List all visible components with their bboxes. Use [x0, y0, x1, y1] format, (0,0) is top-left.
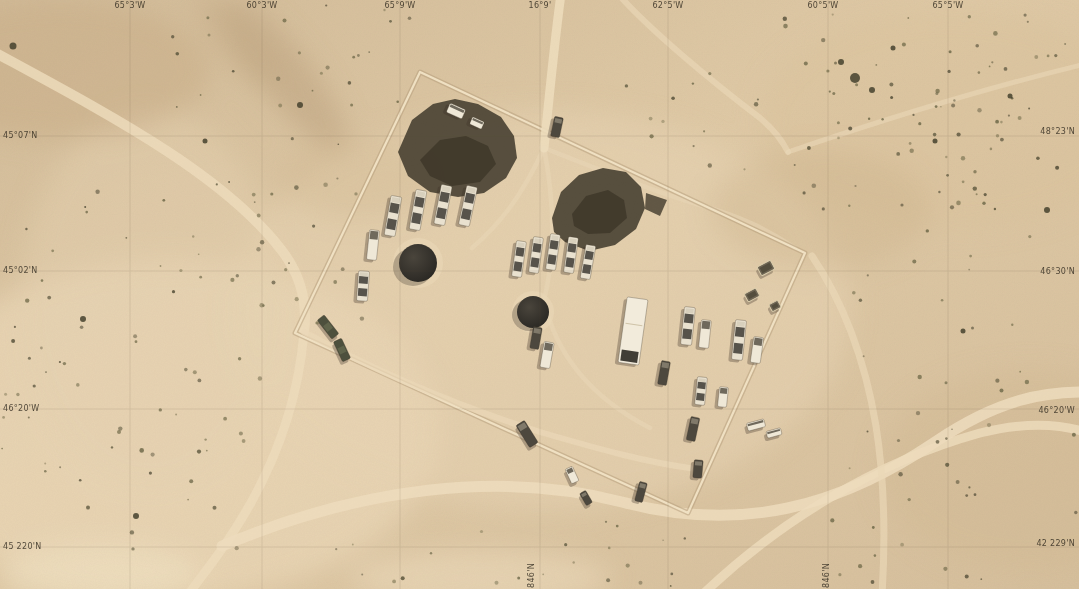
shrub — [95, 190, 99, 194]
shrub — [987, 423, 991, 427]
shrub — [975, 44, 979, 48]
shrub — [63, 362, 66, 365]
shrub — [1004, 67, 1008, 71]
shrub — [990, 148, 993, 151]
shrub — [325, 4, 327, 6]
shrub — [822, 207, 825, 210]
shrub — [270, 192, 273, 195]
shrub — [1027, 21, 1029, 23]
shrub — [950, 205, 954, 209]
shrub — [855, 83, 858, 86]
shrub — [352, 56, 355, 59]
shrub — [935, 89, 939, 93]
shrub — [872, 526, 875, 529]
shrub — [783, 24, 788, 29]
shrub — [962, 180, 965, 183]
bush — [850, 73, 860, 83]
shrub — [807, 146, 811, 150]
shrub — [213, 506, 217, 510]
shrub — [900, 543, 904, 547]
shrub — [139, 448, 144, 453]
shrub — [257, 214, 261, 218]
shrub — [898, 472, 902, 476]
shrub — [206, 450, 208, 452]
shrub — [193, 370, 197, 374]
radar-dome — [399, 244, 437, 282]
shrub — [86, 506, 90, 510]
shrub — [1047, 55, 1050, 58]
shrub — [918, 375, 922, 379]
shrub — [176, 106, 178, 108]
shrub — [28, 357, 31, 360]
shrub — [909, 142, 912, 145]
shrub — [171, 35, 174, 38]
shrub — [969, 255, 972, 258]
shrub — [662, 539, 664, 541]
shrub — [361, 573, 363, 575]
shrub — [875, 64, 877, 66]
shrub — [389, 20, 392, 23]
shrub — [1034, 55, 1038, 59]
shrub — [910, 149, 914, 153]
shrub — [44, 470, 47, 473]
shrub — [1072, 433, 1076, 437]
shrub — [1000, 389, 1004, 393]
shrub — [430, 552, 432, 554]
shrub — [916, 411, 920, 415]
satellite-scene — [0, 0, 1079, 589]
shrub — [849, 467, 851, 469]
shrub — [941, 299, 944, 302]
shrub — [626, 564, 630, 568]
shrub — [926, 229, 929, 232]
shrub — [953, 99, 955, 101]
shrub — [320, 72, 323, 75]
shrub — [288, 262, 290, 264]
shrub — [236, 274, 239, 277]
shrub — [28, 417, 30, 419]
shrub — [1019, 371, 1021, 373]
missile-launcher-truck — [353, 270, 369, 303]
shrub — [4, 393, 7, 396]
shrub — [956, 480, 960, 484]
shrub — [256, 247, 260, 251]
shrub — [1054, 54, 1057, 57]
shrub — [573, 561, 575, 563]
shrub — [982, 202, 985, 205]
shrub — [254, 201, 256, 203]
shrub — [79, 479, 82, 482]
shrub — [945, 156, 947, 158]
shrub — [965, 575, 969, 579]
shrub — [401, 576, 405, 580]
shrub — [936, 440, 940, 444]
shrub — [338, 144, 340, 146]
shrub — [278, 104, 282, 108]
shrub — [804, 61, 808, 65]
shrub — [984, 193, 987, 196]
shrub — [671, 97, 675, 101]
shrub — [206, 16, 209, 19]
shrub — [852, 291, 856, 295]
shrub — [977, 108, 981, 112]
shrub — [85, 211, 88, 214]
shrub — [968, 486, 970, 488]
shrub — [312, 90, 314, 92]
shrub — [179, 269, 182, 272]
shrub — [837, 121, 840, 124]
shrub — [1011, 324, 1013, 326]
shrub — [25, 298, 29, 302]
shrub — [830, 518, 834, 522]
bush — [961, 329, 966, 334]
shrub — [59, 466, 61, 468]
shrub — [480, 530, 483, 533]
shrub — [971, 327, 974, 330]
shrub — [949, 50, 952, 53]
shrub — [197, 450, 201, 454]
shrub — [965, 494, 968, 497]
shrub — [1, 448, 3, 450]
bush — [891, 46, 896, 51]
shrub — [354, 192, 357, 195]
shrub — [1074, 511, 1077, 514]
bush — [297, 102, 303, 108]
shrub — [133, 334, 137, 338]
shrub — [661, 120, 664, 123]
shrub — [11, 339, 15, 343]
shrub — [199, 276, 202, 279]
shrub — [743, 168, 745, 170]
shrub — [383, 9, 385, 11]
shrub — [495, 581, 499, 585]
shrub — [232, 70, 235, 73]
shrub — [294, 185, 299, 190]
shrub — [838, 573, 841, 576]
shrub — [1028, 108, 1030, 110]
shrub — [184, 368, 188, 372]
shrub — [44, 463, 46, 465]
shrub — [1008, 115, 1010, 117]
shrub — [989, 66, 991, 68]
shrub — [881, 118, 883, 120]
shrub — [980, 578, 982, 580]
shrub — [59, 361, 61, 363]
shrub — [564, 543, 567, 546]
shrub — [991, 61, 993, 63]
shrub — [907, 17, 909, 19]
shrub — [649, 117, 653, 121]
shrub — [693, 145, 695, 147]
shrub — [692, 82, 694, 84]
shrub — [935, 105, 938, 108]
shrub — [900, 203, 903, 206]
shrub — [189, 479, 193, 483]
shrub — [242, 439, 246, 443]
shrub — [889, 83, 893, 87]
shrub — [938, 191, 940, 193]
shrub — [854, 185, 856, 187]
shrub — [978, 71, 981, 74]
shrub — [408, 17, 412, 21]
shrub — [794, 164, 796, 166]
bush — [838, 59, 844, 65]
dark-truck — [690, 459, 704, 480]
shrub — [837, 137, 840, 140]
shrub — [258, 376, 262, 380]
shrub — [230, 278, 234, 282]
shrub — [995, 379, 999, 383]
shrub — [125, 237, 127, 239]
shrub — [708, 72, 711, 75]
shrub — [757, 98, 759, 100]
shrub — [803, 191, 806, 194]
shrub — [47, 296, 51, 300]
shrub — [298, 51, 301, 54]
shrub — [896, 152, 900, 156]
shrub — [172, 290, 175, 293]
shrub — [858, 564, 862, 568]
shrub — [25, 228, 27, 230]
shrub — [918, 122, 921, 125]
shrub — [135, 340, 138, 343]
shrub — [360, 316, 364, 320]
shrub — [912, 260, 916, 264]
shrub — [341, 267, 345, 271]
shrub — [945, 437, 948, 440]
shrub — [276, 77, 280, 81]
shrub — [859, 299, 862, 302]
shrub — [1000, 121, 1003, 124]
shrub — [51, 249, 54, 252]
shrub — [41, 279, 44, 282]
shrub — [670, 585, 672, 587]
shrub — [868, 118, 870, 120]
shrub — [834, 62, 837, 65]
shrub — [45, 371, 47, 373]
shrub — [80, 326, 84, 330]
shrub — [223, 417, 227, 421]
shrub — [84, 206, 86, 208]
shrub — [216, 183, 218, 185]
shrub — [625, 84, 628, 87]
shrub — [160, 265, 162, 267]
bush — [10, 43, 17, 50]
shrub — [867, 431, 869, 433]
shrub — [974, 493, 977, 496]
shrub — [1000, 138, 1004, 142]
shrub — [1028, 235, 1031, 238]
bush — [80, 316, 86, 322]
shrub — [821, 38, 825, 42]
shrub — [867, 274, 869, 276]
shrub — [951, 103, 955, 107]
shrub — [16, 393, 19, 396]
bush — [203, 139, 208, 144]
shrub — [295, 297, 299, 301]
shrub — [151, 453, 155, 457]
bush — [869, 87, 875, 93]
shrub — [754, 102, 758, 106]
shrub — [670, 573, 673, 576]
shrub — [352, 544, 354, 546]
shrub — [994, 208, 996, 210]
shrub — [326, 66, 330, 70]
shrub — [1024, 14, 1027, 17]
shrub — [2, 416, 5, 419]
shrub — [812, 184, 817, 189]
shrub — [968, 15, 971, 18]
shrub — [902, 43, 906, 47]
shrub — [149, 472, 152, 475]
shrub — [1064, 43, 1066, 45]
shrub — [323, 182, 328, 187]
shrub — [708, 163, 712, 167]
shrub — [187, 499, 189, 501]
shrub — [605, 521, 607, 523]
bush — [933, 139, 938, 144]
shrub — [976, 193, 978, 195]
bush — [1044, 207, 1050, 213]
shrub — [863, 355, 865, 357]
shrub — [542, 573, 544, 575]
shrub — [940, 106, 942, 108]
shrub — [76, 383, 80, 387]
shrub — [204, 438, 206, 440]
shrub — [239, 432, 243, 436]
shrub — [228, 181, 230, 183]
shrub — [639, 581, 643, 585]
shrub — [336, 177, 338, 179]
shrub — [350, 104, 353, 107]
shrub — [357, 54, 360, 57]
shrub — [829, 91, 831, 93]
shrub — [943, 567, 947, 571]
bush — [133, 513, 139, 519]
shrub — [368, 51, 370, 53]
shrub — [703, 130, 705, 132]
bush — [1008, 94, 1013, 99]
shrub — [832, 14, 834, 16]
shrub — [517, 577, 520, 580]
shrub — [238, 357, 241, 360]
shrub — [874, 554, 877, 557]
shrub — [175, 413, 177, 415]
shrub — [208, 33, 211, 36]
shrub — [283, 19, 287, 23]
shrub — [192, 235, 194, 237]
satellite-view: 65°3'W 60°3'W 65°9'W 16°9' 62°5'W 60°5'W… — [0, 0, 1079, 589]
shrub — [176, 52, 180, 56]
shrub — [131, 547, 134, 550]
shrub — [315, 321, 318, 324]
shrub — [272, 281, 276, 285]
shrub — [200, 94, 202, 96]
shrub — [897, 439, 900, 442]
shrub — [945, 381, 948, 384]
shrub — [198, 253, 200, 255]
radar-dome — [517, 296, 549, 328]
shrub — [40, 347, 43, 350]
shrub — [951, 429, 953, 431]
shrub — [945, 463, 949, 467]
shrub — [1036, 156, 1040, 160]
shrub — [912, 114, 914, 116]
shrub — [832, 92, 835, 95]
shrub — [14, 326, 16, 328]
shrub — [890, 96, 893, 99]
shrub — [783, 17, 787, 21]
shrub — [1025, 380, 1029, 384]
shrub — [684, 537, 686, 539]
shrub — [396, 101, 399, 104]
shrub — [616, 525, 619, 528]
shrub — [198, 379, 202, 383]
shrub — [33, 384, 36, 387]
shrub — [973, 186, 977, 190]
shrub — [118, 426, 122, 430]
shrub — [995, 120, 999, 124]
shrub — [606, 578, 610, 582]
shrub — [291, 137, 294, 140]
shrub — [348, 81, 352, 85]
shrub — [312, 225, 315, 228]
shrub — [333, 280, 337, 284]
shrub — [908, 498, 911, 501]
shrub — [871, 580, 875, 584]
shrub — [961, 156, 965, 160]
shrub — [956, 201, 961, 206]
shrub — [335, 548, 337, 550]
shrub — [848, 205, 850, 207]
shrub — [252, 193, 256, 197]
shrub — [111, 446, 113, 448]
shrub — [392, 580, 396, 584]
shrub — [993, 31, 998, 36]
shrub — [1055, 166, 1059, 170]
shrub — [968, 269, 970, 271]
shrub — [162, 199, 165, 202]
shrub — [973, 170, 976, 173]
shrub — [848, 127, 852, 131]
shrub — [1018, 116, 1022, 120]
